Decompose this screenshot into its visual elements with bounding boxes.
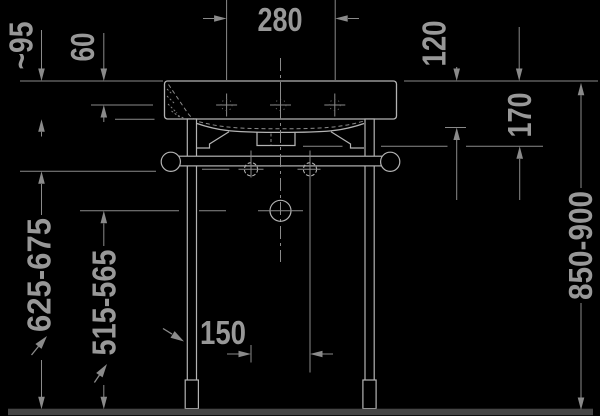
svg-text:515-565: 515-565 <box>86 250 123 356</box>
svg-text:850-900: 850-900 <box>562 191 599 300</box>
svg-text:120: 120 <box>416 21 453 67</box>
svg-text:150: 150 <box>200 314 246 351</box>
svg-text:60: 60 <box>64 33 101 62</box>
svg-text:625-675: 625-675 <box>21 218 58 332</box>
svg-text:170: 170 <box>501 93 538 138</box>
svg-text:280: 280 <box>258 1 303 38</box>
svg-text:~95: ~95 <box>3 22 40 70</box>
